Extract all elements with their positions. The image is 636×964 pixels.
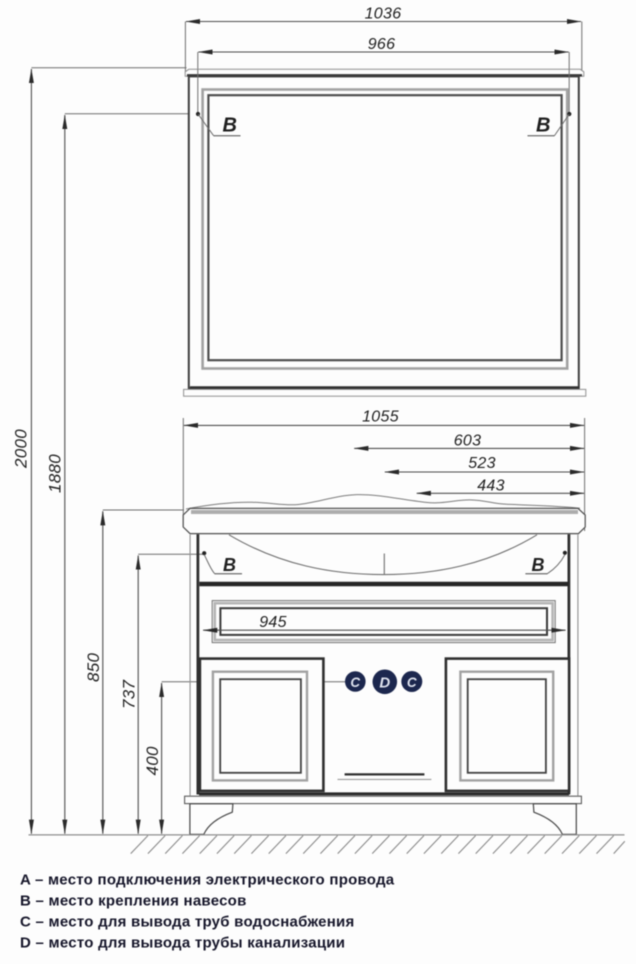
svg-text:523: 523: [468, 455, 496, 472]
svg-text:D – место для вывода трубы кан: D – место для вывода трубы канализации: [20, 935, 345, 952]
svg-text:945: 945: [259, 614, 287, 631]
svg-text:C: C: [407, 675, 417, 690]
svg-text:2000: 2000: [12, 429, 31, 469]
svg-text:B – место крепления навесов: B – место крепления навесов: [20, 893, 247, 910]
svg-text:443: 443: [477, 477, 505, 494]
svg-text:966: 966: [368, 36, 396, 53]
svg-text:B: B: [223, 115, 237, 137]
svg-text:C – место для вывода труб водо: C – место для вывода труб водоснабжения: [20, 914, 355, 931]
svg-text:850: 850: [84, 652, 103, 682]
svg-text:400: 400: [143, 746, 162, 776]
svg-text:B: B: [532, 555, 545, 575]
svg-text:B: B: [223, 555, 236, 575]
svg-text:603: 603: [454, 432, 482, 449]
svg-text:D: D: [379, 675, 390, 692]
svg-text:737: 737: [120, 679, 139, 709]
svg-text:C: C: [350, 675, 360, 690]
svg-text:1880: 1880: [46, 454, 65, 493]
svg-text:1055: 1055: [362, 408, 399, 425]
svg-text:A – место подключения электрич: A – место подключения электрического про…: [20, 872, 395, 889]
svg-text:B: B: [536, 115, 550, 137]
svg-text:1036: 1036: [365, 6, 402, 23]
